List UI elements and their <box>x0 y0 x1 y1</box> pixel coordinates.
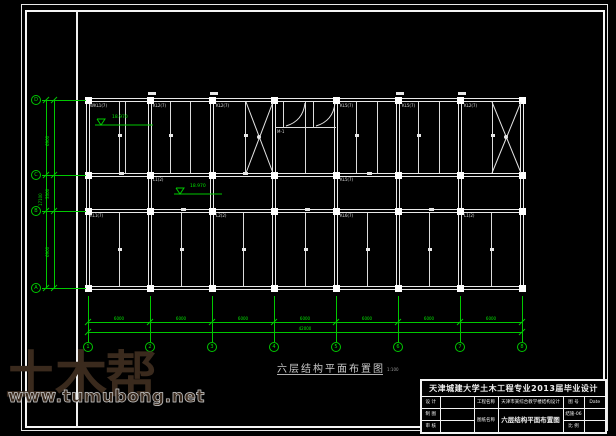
project-value: 天津市某综合教学楼结构设计 <box>498 397 563 409</box>
dim-text: 6000 <box>166 316 196 321</box>
axis-bubble-row: D <box>31 95 41 105</box>
dim-text-total: 42000 <box>290 326 320 331</box>
dim-text: 6000 <box>414 316 444 321</box>
elevation-value: 18.970 <box>112 115 128 120</box>
check-label: 审 核 <box>421 421 440 434</box>
axis-bubble-col: 7 <box>455 342 465 352</box>
beam-label: WKL1(7) <box>90 104 107 108</box>
beam-label: KL5(7) <box>340 104 353 108</box>
door-swing-arc <box>316 103 335 126</box>
axis-bubble-row: C <box>31 170 41 180</box>
axis-line-row-b <box>42 211 86 212</box>
drawing-name-value: 六层结构平面布置图 <box>498 409 563 434</box>
drawing-no-value: 结施-06 <box>563 409 584 421</box>
left-dim-chain-outer <box>54 100 55 289</box>
axis-bubble-col: 3 <box>207 342 217 352</box>
draft-value <box>440 409 474 421</box>
title-block-header: 天津城建大学土木工程专业2013届毕业设计 <box>421 380 606 397</box>
bottom-extension-line <box>460 296 461 342</box>
axis-bubble-row: A <box>31 283 41 293</box>
dim-text: 6000 <box>290 316 320 321</box>
bottom-extension-line <box>398 296 399 342</box>
axis-bubble-col: 8 <box>517 342 527 352</box>
beam-label: KL2(7) <box>464 104 477 108</box>
bottom-extension-line <box>150 296 151 342</box>
date-label: Date <box>584 397 606 409</box>
elevation-markers <box>95 119 222 194</box>
beam-label: KL2(7) <box>153 104 166 108</box>
scale-label: 比 例 <box>563 421 584 434</box>
beam-label: KL2(7) <box>216 104 229 108</box>
axis-bubble-col: 6 <box>393 342 403 352</box>
cad-drawing-sheet: 6000 6000 6000 6000 6000 6000 6000 42000… <box>0 0 616 436</box>
caption-underline <box>277 374 383 375</box>
axis-line-row-d <box>42 100 86 101</box>
door-swing-arc <box>286 103 305 126</box>
axis-bubble-row: B <box>31 206 41 216</box>
beam-label: L2(2) <box>216 214 226 218</box>
bottom-extension-line <box>88 296 89 342</box>
beam-label: M-1 <box>277 130 284 134</box>
beam-label: KL6(7) <box>340 214 353 218</box>
date-value <box>584 409 606 421</box>
elevation-value: 18.970 <box>190 184 206 189</box>
scale-value <box>584 421 606 434</box>
project-label: 工程名称 <box>474 397 498 409</box>
axis-bubble-col: 5 <box>331 342 341 352</box>
beam-label: L1(2) <box>153 178 163 182</box>
dim-text-total: 17100 <box>38 193 43 206</box>
design-value <box>440 397 474 409</box>
bottom-dim-line-bays <box>88 322 523 323</box>
caption-scale: 1:100 <box>387 367 399 372</box>
bottom-extension-line <box>336 296 337 342</box>
beam-label: KL1(7) <box>90 214 103 218</box>
dim-text: 6900 <box>45 136 50 146</box>
watermark-url: www.tumubong.net <box>8 387 205 407</box>
axis-bubble-col: 4 <box>269 342 279 352</box>
dim-text: 6000 <box>104 316 134 321</box>
design-label: 设 计 <box>421 397 440 409</box>
beam-label: KL5(7) <box>340 178 353 182</box>
bottom-extension-line <box>274 296 275 342</box>
dim-text: 6000 <box>228 316 258 321</box>
draft-label: 制 图 <box>421 409 440 421</box>
dim-text: 6900 <box>45 247 50 257</box>
drawing-name-label: 图纸名称 <box>474 409 498 434</box>
axis-line-row-c <box>42 175 86 176</box>
beam-label: L1(2) <box>464 214 474 218</box>
check-value <box>440 421 474 434</box>
dim-text: 3300 <box>45 189 50 199</box>
drawing-no-label: 图 号 <box>563 397 584 409</box>
bottom-extension-line <box>522 296 523 342</box>
stair-x-braces <box>246 102 521 173</box>
beam-label: KL5(7) <box>402 104 415 108</box>
drawing-title-caption: 六层结构平面布置图 <box>277 360 385 375</box>
title-block: 天津城建大学土木工程专业2013届毕业设计 设 计 工程名称 天津市某综合教学楼… <box>420 379 607 434</box>
bottom-dim-line-total <box>88 332 523 333</box>
dim-text: 6000 <box>476 316 506 321</box>
dim-text: 6000 <box>352 316 382 321</box>
axis-line-row-a <box>42 288 86 289</box>
bottom-extension-line <box>212 296 213 342</box>
